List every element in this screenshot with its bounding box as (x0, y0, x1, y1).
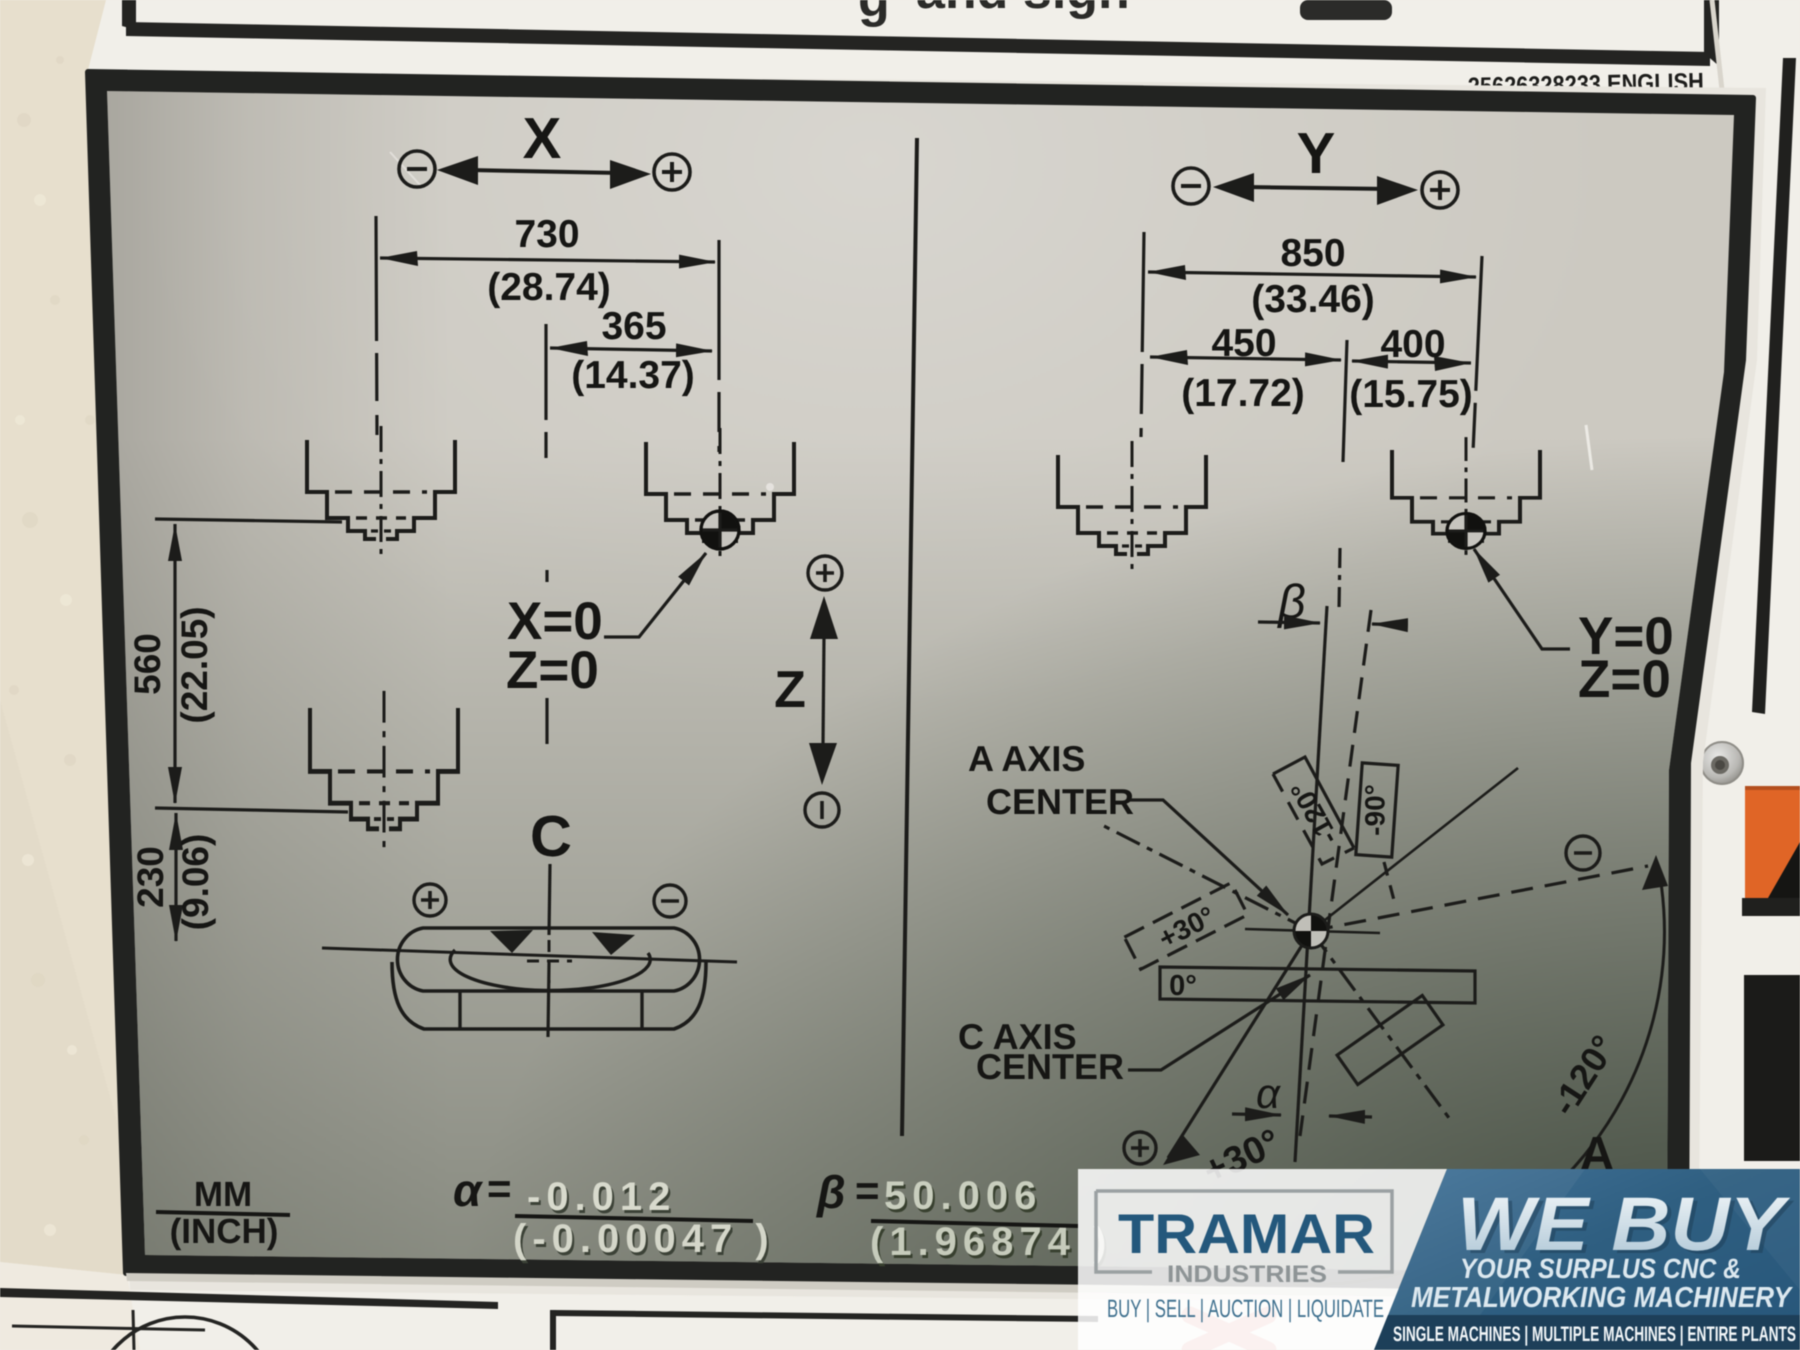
svg-text:Z=0: Z=0 (506, 641, 599, 700)
svg-text:(9.06): (9.06) (175, 834, 216, 931)
svg-text:X: X (523, 106, 562, 171)
svg-text:730: 730 (514, 213, 579, 256)
svg-text:365: 365 (601, 305, 666, 348)
svg-text:(22.05): (22.05) (174, 606, 215, 723)
svg-text:(17.72): (17.72) (1181, 372, 1305, 415)
svg-text:α: α (1256, 1070, 1281, 1117)
svg-text:560: 560 (127, 633, 168, 695)
svg-text:(33.46): (33.46) (1251, 278, 1375, 321)
svg-text:BUY | SELL | AUCTION | LIQUIDA: BUY | SELL | AUCTION | LIQUIDATE (1107, 1295, 1384, 1323)
svg-text:0°: 0° (1169, 970, 1197, 1002)
svg-text:C: C (530, 804, 572, 869)
svg-text:(15.75): (15.75) (1349, 373, 1473, 416)
svg-text:(-0.00047 ): (-0.00047 ) (513, 1217, 775, 1261)
svg-text:β: β (816, 1166, 846, 1218)
svg-text:SINGLE MACHINES | MULTIPLE MAC: SINGLE MACHINES | MULTIPLE MACHINES | EN… (1393, 1323, 1796, 1346)
svg-text:Z=0: Z=0 (1578, 650, 1671, 709)
svg-text:=: = (487, 1165, 512, 1212)
svg-text:CENTER: CENTER (976, 1046, 1124, 1087)
svg-text:MM: MM (194, 1175, 252, 1214)
svg-text:400: 400 (1380, 323, 1445, 366)
svg-text:YOUR SURPLUS CNC &: YOUR SURPLUS CNC & (1460, 1253, 1741, 1284)
svg-text:Y: Y (1297, 121, 1336, 186)
svg-text:Z: Z (774, 661, 806, 719)
svg-text:450: 450 (1211, 322, 1276, 365)
svg-text:(14.37): (14.37) (571, 354, 695, 397)
svg-text:850: 850 (1280, 232, 1345, 275)
svg-text:(INCH): (INCH) (170, 1212, 279, 1251)
svg-text:=: = (855, 1167, 880, 1214)
svg-text:g: g (858, 0, 890, 28)
svg-text:-0.012: -0.012 (527, 1175, 676, 1219)
svg-text:50.006: 50.006 (884, 1174, 1042, 1218)
svg-text:INDUSTRIES: INDUSTRIES (1167, 1261, 1327, 1288)
svg-text:A AXIS: A AXIS (968, 738, 1085, 779)
svg-text:230: 230 (130, 846, 171, 908)
svg-text:α: α (453, 1164, 484, 1216)
svg-text:and sign: and sign (916, 0, 1130, 20)
svg-text:CENTER: CENTER (986, 781, 1134, 822)
svg-text:TRAMAR: TRAMAR (1118, 1202, 1375, 1265)
svg-text:-90°: -90° (1359, 784, 1390, 836)
svg-text:(28.74): (28.74) (487, 266, 611, 309)
svg-text:METALWORKING MACHINERY: METALWORKING MACHINERY (1411, 1282, 1793, 1314)
